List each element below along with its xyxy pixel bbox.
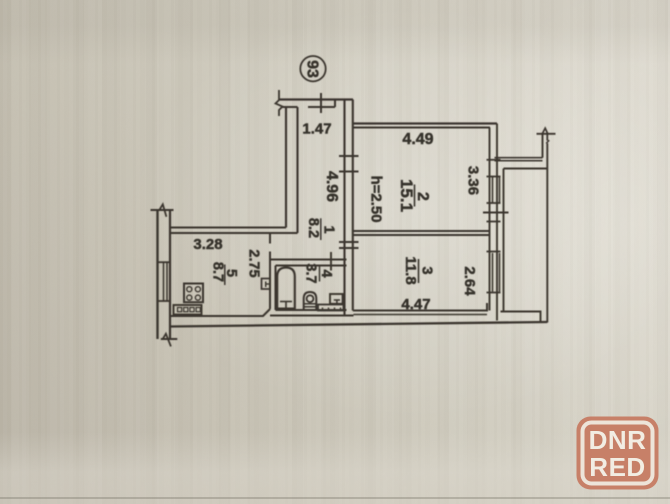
svg-text:3.28: 3.28 <box>193 236 222 253</box>
svg-text:3: 3 <box>418 266 434 274</box>
svg-text:1: 1 <box>320 225 336 233</box>
svg-text:4.49: 4.49 <box>402 131 433 148</box>
svg-text:2.64: 2.64 <box>461 266 478 296</box>
svg-text:1.47: 1.47 <box>302 121 331 138</box>
svg-text:4.47: 4.47 <box>401 296 430 313</box>
svg-text:2.75: 2.75 <box>245 249 261 277</box>
svg-text:DNR: DNR <box>589 425 647 455</box>
svg-text:3.36: 3.36 <box>465 166 482 195</box>
svg-text:15.1: 15.1 <box>397 179 416 212</box>
svg-text:11.8: 11.8 <box>402 256 419 284</box>
svg-text:4.96: 4.96 <box>323 171 340 202</box>
svg-text:2: 2 <box>414 192 431 201</box>
svg-text:RED: RED <box>589 452 645 482</box>
svg-text:3.7: 3.7 <box>302 263 318 283</box>
svg-text:4: 4 <box>318 269 334 277</box>
svg-text:h=2.50: h=2.50 <box>368 175 385 222</box>
svg-text:93: 93 <box>304 60 321 78</box>
svg-text:8.2: 8.2 <box>305 218 321 238</box>
